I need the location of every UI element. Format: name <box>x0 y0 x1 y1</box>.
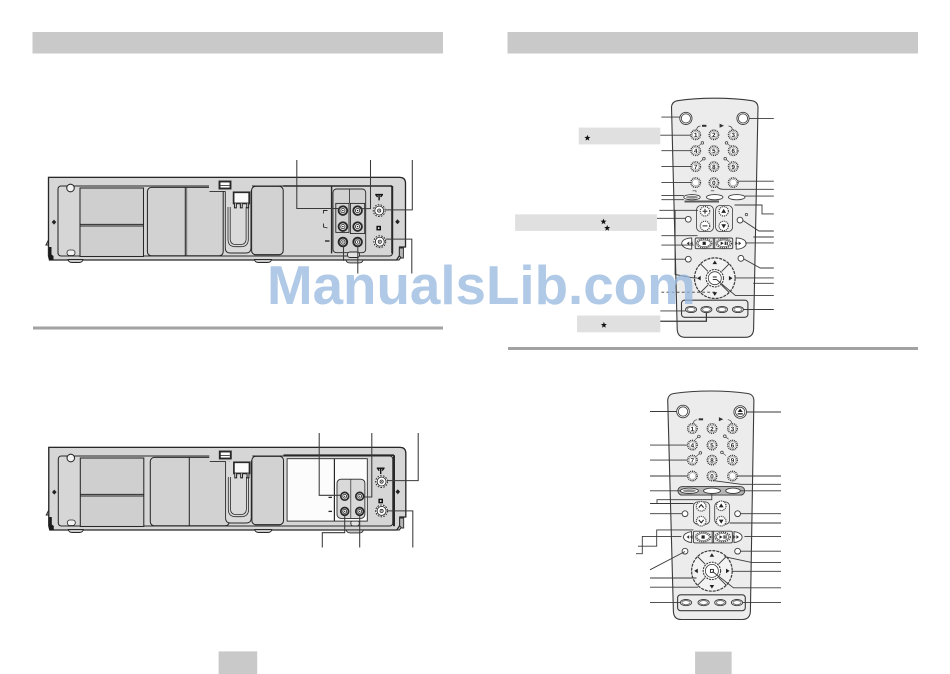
svg-text:0: 0 <box>710 473 714 480</box>
svg-text:8: 8 <box>710 457 714 464</box>
svg-text:6: 6 <box>731 442 735 449</box>
svg-text:4: 4 <box>691 442 695 449</box>
svg-text:9: 9 <box>731 457 735 464</box>
svg-text:3: 3 <box>731 426 735 433</box>
svg-text:3: 3 <box>731 132 735 139</box>
svg-text:2: 2 <box>712 132 716 139</box>
svg-text:7: 7 <box>691 457 695 464</box>
svg-text:6: 6 <box>731 148 735 155</box>
svg-text:2: 2 <box>710 426 714 433</box>
svg-text:5: 5 <box>710 442 714 449</box>
svg-text:0: 0 <box>712 180 716 187</box>
svg-text:4: 4 <box>694 148 698 155</box>
svg-text:7: 7 <box>694 164 698 171</box>
svg-text:8: 8 <box>712 164 716 171</box>
svg-text:9: 9 <box>731 164 735 171</box>
svg-text:1: 1 <box>691 426 695 433</box>
svg-text:5: 5 <box>712 148 716 155</box>
svg-text:1: 1 <box>694 132 698 139</box>
